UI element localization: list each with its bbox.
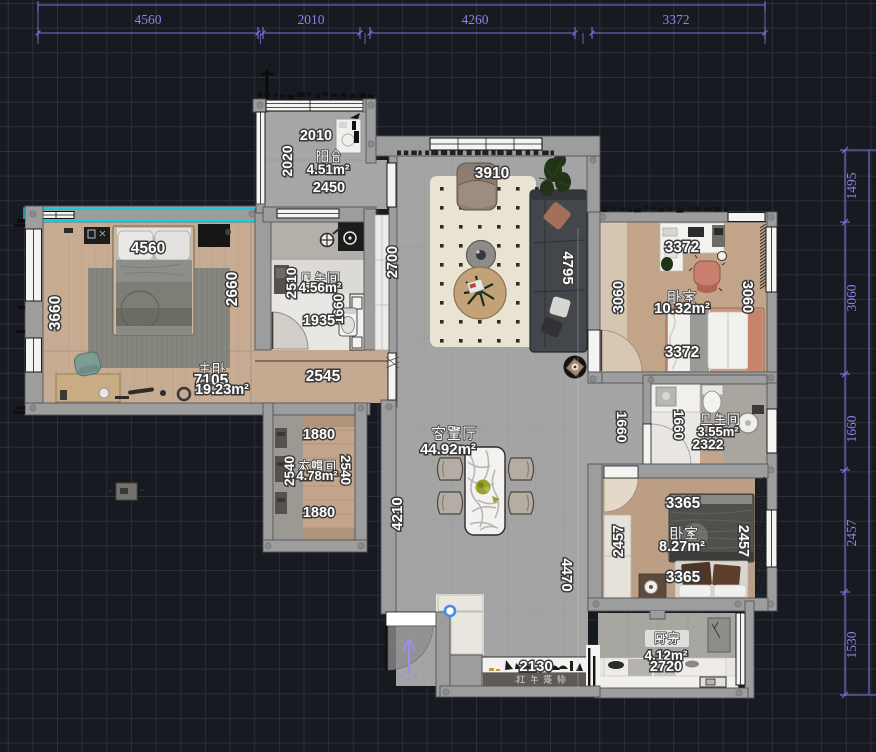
svg-text:1880: 1880 [303,427,335,443]
svg-text:2457: 2457 [611,525,627,557]
svg-text:4260: 4260 [462,12,489,27]
svg-text:1495: 1495 [844,172,859,199]
svg-text:3060: 3060 [844,284,859,311]
svg-text:44.92m²: 44.92m² [420,441,476,458]
svg-text:10.32m²: 10.32m² [654,300,710,317]
svg-text:4470: 4470 [558,558,575,591]
svg-text:4795: 4795 [559,251,576,284]
svg-text:2700: 2700 [385,246,401,278]
svg-text:8.27m²: 8.27m² [659,539,705,555]
svg-text:2457: 2457 [735,525,751,557]
svg-text:1660: 1660 [671,410,686,440]
svg-text:3060: 3060 [739,281,755,313]
svg-text:1935: 1935 [303,313,335,329]
svg-text:3365: 3365 [666,495,701,512]
svg-text:2540: 2540 [338,455,353,485]
svg-text:2510: 2510 [283,267,299,298]
svg-text:4560: 4560 [131,240,165,257]
svg-text:4.51m²: 4.51m² [307,162,350,177]
svg-text:2130: 2130 [519,658,552,675]
svg-text:1530: 1530 [844,631,859,658]
svg-text:4210: 4210 [389,497,406,530]
svg-text:2660: 2660 [224,272,241,306]
svg-text:3372: 3372 [665,344,699,361]
svg-text:19.23m²: 19.23m² [195,382,249,398]
svg-text:2540: 2540 [282,456,297,486]
svg-text:3060: 3060 [611,281,627,313]
svg-text:2010: 2010 [298,12,325,27]
svg-text:3372: 3372 [665,239,699,256]
svg-text:3660: 3660 [47,296,64,330]
svg-text:3365: 3365 [666,569,701,586]
svg-text:4.78m²: 4.78m² [296,468,338,483]
svg-text:2322: 2322 [692,436,723,452]
svg-text:2010: 2010 [300,128,332,144]
svg-text:2545: 2545 [306,368,341,385]
svg-text:1880: 1880 [303,505,335,521]
svg-text:2450: 2450 [313,180,345,196]
svg-text:1660: 1660 [844,415,859,442]
svg-text:4.56m²: 4.56m² [299,280,342,295]
svg-text:2720: 2720 [650,659,682,675]
svg-text:1660: 1660 [614,411,630,442]
svg-text:3372: 3372 [663,12,690,27]
svg-text:2020: 2020 [279,145,295,176]
svg-text:3910: 3910 [475,165,509,182]
svg-text:2457: 2457 [844,519,859,546]
svg-text:4560: 4560 [135,12,162,27]
